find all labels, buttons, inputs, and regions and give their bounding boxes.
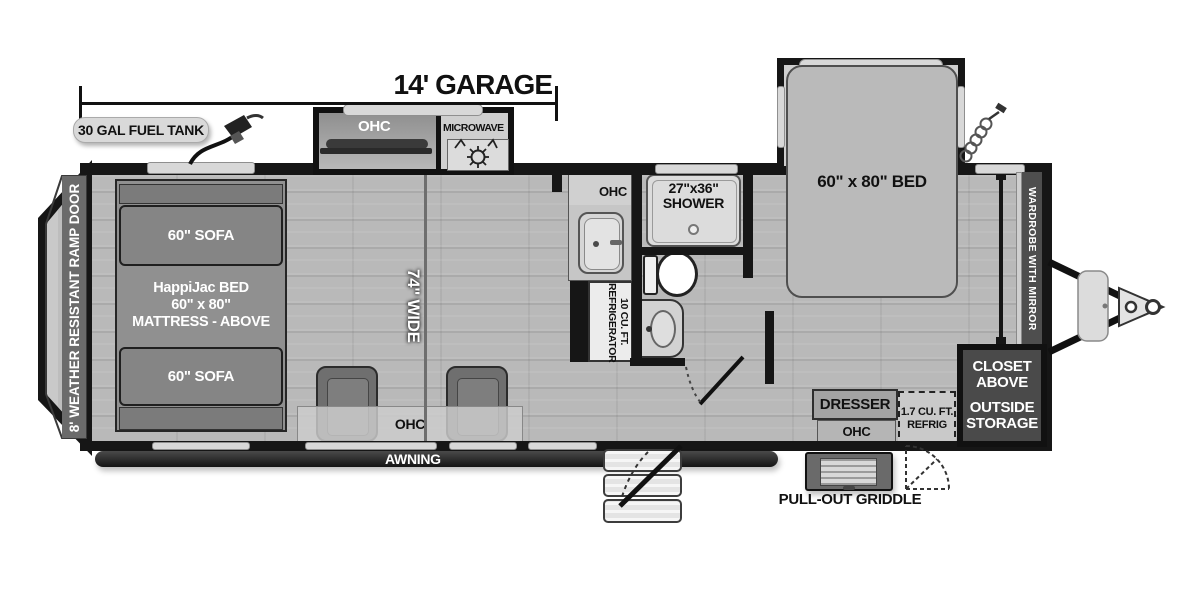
closet-line4: STORAGE xyxy=(966,416,1038,432)
dresser-ohc-label: OHC xyxy=(843,424,871,439)
shower-label: 27"x36" SHOWER xyxy=(646,179,741,213)
entry-step xyxy=(603,474,682,497)
microwave-label: MICROWAVE xyxy=(443,122,504,134)
outdoor-ohc-label: OHC xyxy=(358,118,390,135)
width-dimension-label: 74" WIDE xyxy=(402,256,424,356)
griddle-door-swing xyxy=(906,446,949,489)
ramp-door-text: 8' WEATHER RESISTANT RAMP DOOR xyxy=(67,184,82,432)
awning-label: AWNING xyxy=(385,451,441,467)
kitchen-wall-stub xyxy=(552,163,562,192)
entry-step xyxy=(603,499,682,523)
window xyxy=(147,162,255,174)
floorplan: 60" SOFA HappiJac BED 60" x 80" MATTRESS… xyxy=(0,0,1200,600)
wardrobe-door-track xyxy=(999,172,1003,345)
wardrobe: WARDROBE WITH MIRROR xyxy=(1022,172,1042,345)
refrigerator: 10 CU. FT. REFRIGERATOR xyxy=(588,281,633,362)
happijac-line1: HappiJac BED xyxy=(153,280,249,297)
ramp-door-label: 8' WEATHER RESISTANT RAMP DOOR xyxy=(65,168,83,448)
garage-divider-wall xyxy=(424,175,427,441)
happijac-line3: MATTRESS - ABOVE xyxy=(132,314,270,331)
bed-label: 60" x 80" BED xyxy=(817,172,927,192)
width-dimension-text: 74" WIDE xyxy=(403,269,423,343)
closet-storage: CLOSET ABOVE OUTSIDE STORAGE xyxy=(957,344,1047,447)
kitchen-ohc-label: OHC xyxy=(599,184,627,199)
closet-line1: CLOSET xyxy=(972,359,1031,375)
griddle-label: PULL-OUT GRIDDLE xyxy=(779,491,922,508)
faucet-icon xyxy=(610,240,622,245)
coupler xyxy=(1119,288,1163,326)
bed-slide-side-window xyxy=(957,86,965,148)
wardrobe-label: WARDROBE WITH MIRROR xyxy=(1026,187,1038,331)
garage-dim-tick xyxy=(79,86,82,121)
bathroom-vanity xyxy=(640,299,684,358)
sofa-front-label: 60" SOFA xyxy=(168,227,234,244)
sofa-rear-label: 60" SOFA xyxy=(168,368,234,385)
toilet-bowl-icon xyxy=(656,251,698,297)
vanity-sink-icon xyxy=(650,310,676,348)
garage-dim-tick xyxy=(555,86,558,121)
griddle-label-wrap: PULL-OUT GRIDDLE xyxy=(775,490,925,508)
shower-label-line1: 27"x36" xyxy=(668,181,718,196)
fuel-tank-pill: 30 GAL FUEL TANK xyxy=(73,117,209,143)
kitchen-sink xyxy=(578,212,624,274)
garage-ohc: OHC xyxy=(297,406,523,442)
mini-fridge-line1: 1.7 CU. FT. xyxy=(901,406,953,419)
garage-dim-line xyxy=(80,102,558,105)
dresser-label: DRESSER xyxy=(820,396,890,413)
garage-ohc-label: OHC xyxy=(395,416,425,432)
queen-bed: 60" x 80" BED xyxy=(786,65,958,298)
shower-drain-icon xyxy=(688,224,699,235)
hallway-wall xyxy=(765,311,774,384)
vanity-faucet-dot-icon xyxy=(646,326,652,332)
window xyxy=(528,442,597,450)
garage-sofa-front: 60" SOFA xyxy=(119,205,283,266)
shower-bottom-wall xyxy=(642,247,743,255)
garage-sofa-rear: 60" SOFA xyxy=(119,347,283,406)
kitchen-bath-wall xyxy=(632,168,642,365)
mini-fridge-line2: REFRIG xyxy=(907,419,947,432)
closet-line2: ABOVE xyxy=(976,375,1028,391)
pull-out-griddle-tray xyxy=(805,452,893,491)
window xyxy=(449,442,517,450)
bath-bottom-wall xyxy=(630,358,685,366)
bed-slide-side-window xyxy=(777,86,785,148)
platform-top-strip xyxy=(119,184,283,204)
fridge-label-line1: 10 CU. FT. xyxy=(618,283,630,360)
window xyxy=(655,164,738,174)
entry-step xyxy=(603,449,682,472)
fuel-tank-label: 30 GAL FUEL TANK xyxy=(78,122,204,138)
burner-box xyxy=(447,139,509,171)
window xyxy=(305,442,437,450)
garage-dim-label: 14' GARAGE xyxy=(394,69,552,100)
hitch xyxy=(1049,262,1163,352)
dresser: DRESSER xyxy=(812,389,898,420)
propane-tank xyxy=(1078,271,1108,341)
window xyxy=(152,442,250,450)
fridge-back-panel xyxy=(570,281,588,362)
garage-dim-label-wrap: 14' GARAGE xyxy=(380,69,552,101)
griddle-plate-icon xyxy=(820,458,877,486)
shower-label-line2: SHOWER xyxy=(663,196,724,211)
shower-right-wall xyxy=(743,168,753,278)
closet-line3: OUTSIDE xyxy=(970,400,1035,416)
power-cord-icon xyxy=(961,103,1007,162)
refrigerator-label: 10 CU. FT. REFRIGERATOR xyxy=(592,283,630,360)
happijac-line2: 60" x 80" xyxy=(171,297,230,314)
mini-fridge: 1.7 CU. FT. REFRIG xyxy=(898,391,956,447)
outdoor-kitchen-header xyxy=(343,104,483,116)
fridge-label-line2: REFRIGERATOR xyxy=(606,283,618,360)
dresser-ohc: OHC xyxy=(817,420,896,442)
cooktop-base-icon xyxy=(320,148,432,154)
platform-bottom-strip xyxy=(119,407,283,430)
happijac-bed-label: HappiJac BED 60" x 80" MATTRESS - ABOVE xyxy=(119,273,283,337)
faucet-dot-icon xyxy=(593,241,599,247)
